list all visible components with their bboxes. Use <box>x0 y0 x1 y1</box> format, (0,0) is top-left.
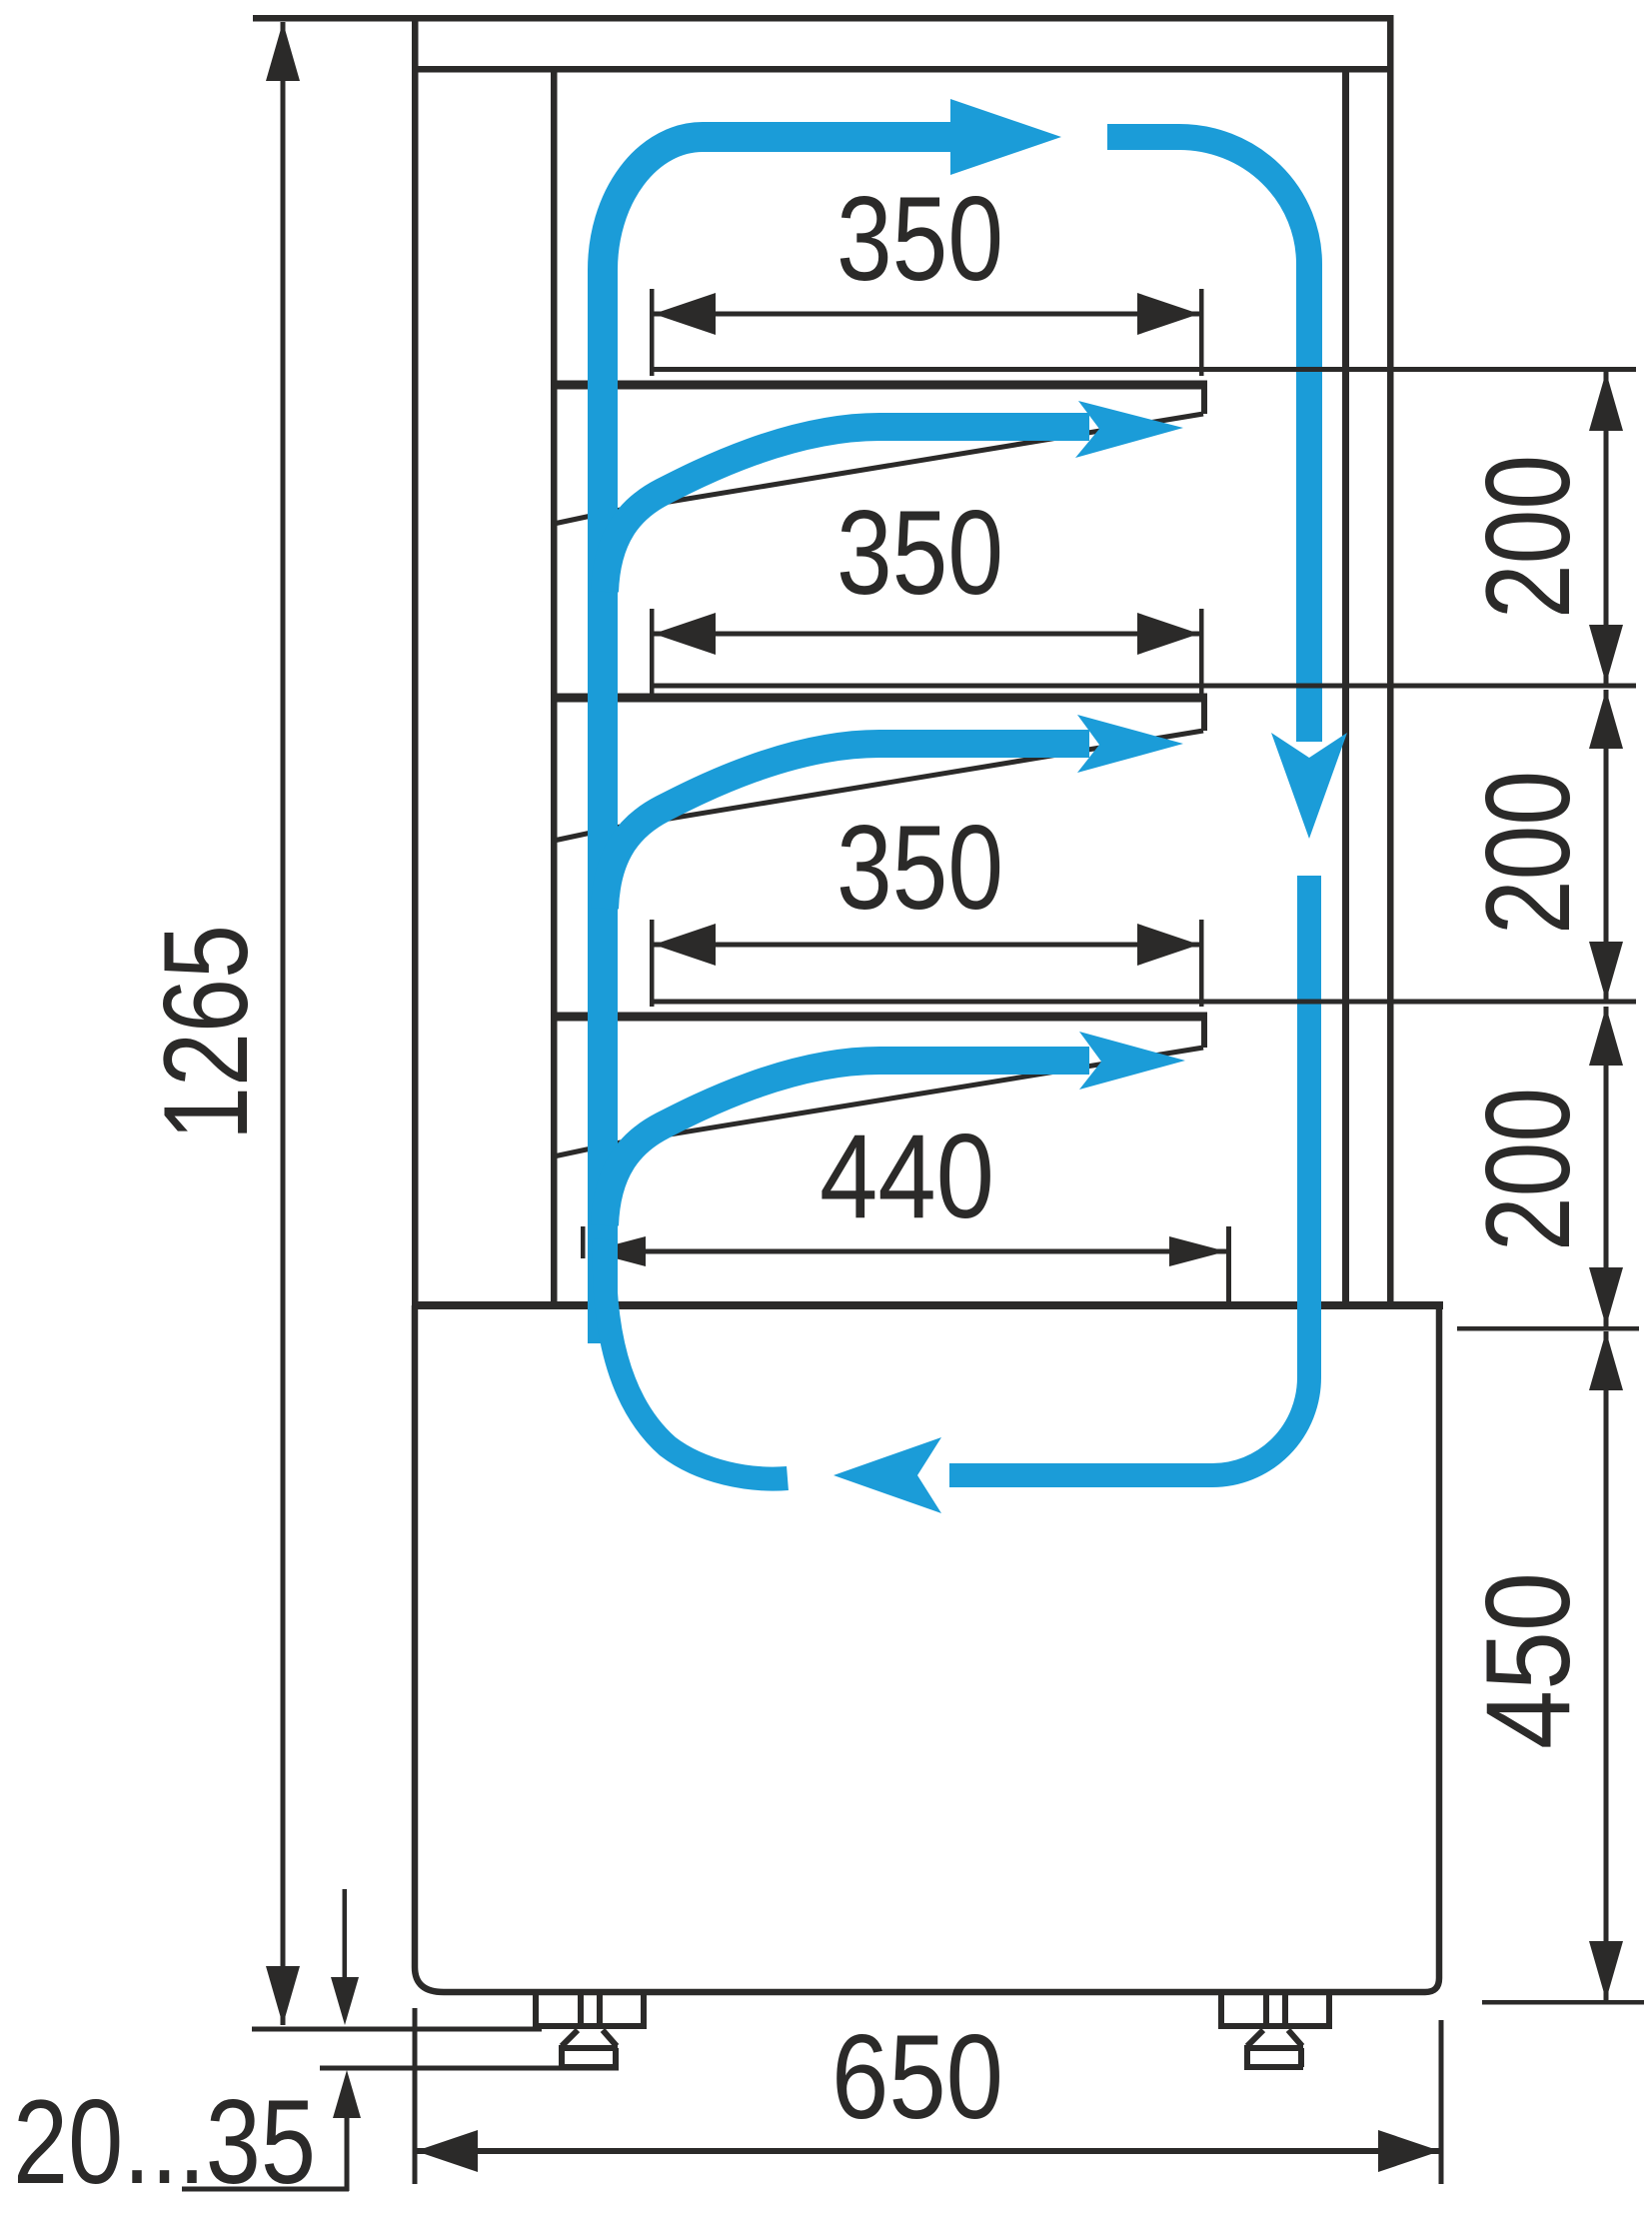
svg-text:450: 450 <box>1461 1572 1595 1749</box>
svg-text:200: 200 <box>1461 1088 1595 1251</box>
svg-text:350: 350 <box>836 172 1003 306</box>
svg-text:20...35: 20...35 <box>13 2075 316 2209</box>
svg-text:350: 350 <box>836 486 1003 620</box>
svg-text:440: 440 <box>820 1109 994 1243</box>
svg-text:200: 200 <box>1461 455 1595 619</box>
svg-text:200: 200 <box>1461 771 1595 935</box>
svg-text:1265: 1265 <box>139 925 273 1140</box>
svg-text:650: 650 <box>831 2010 1003 2144</box>
svg-text:350: 350 <box>836 801 1003 935</box>
